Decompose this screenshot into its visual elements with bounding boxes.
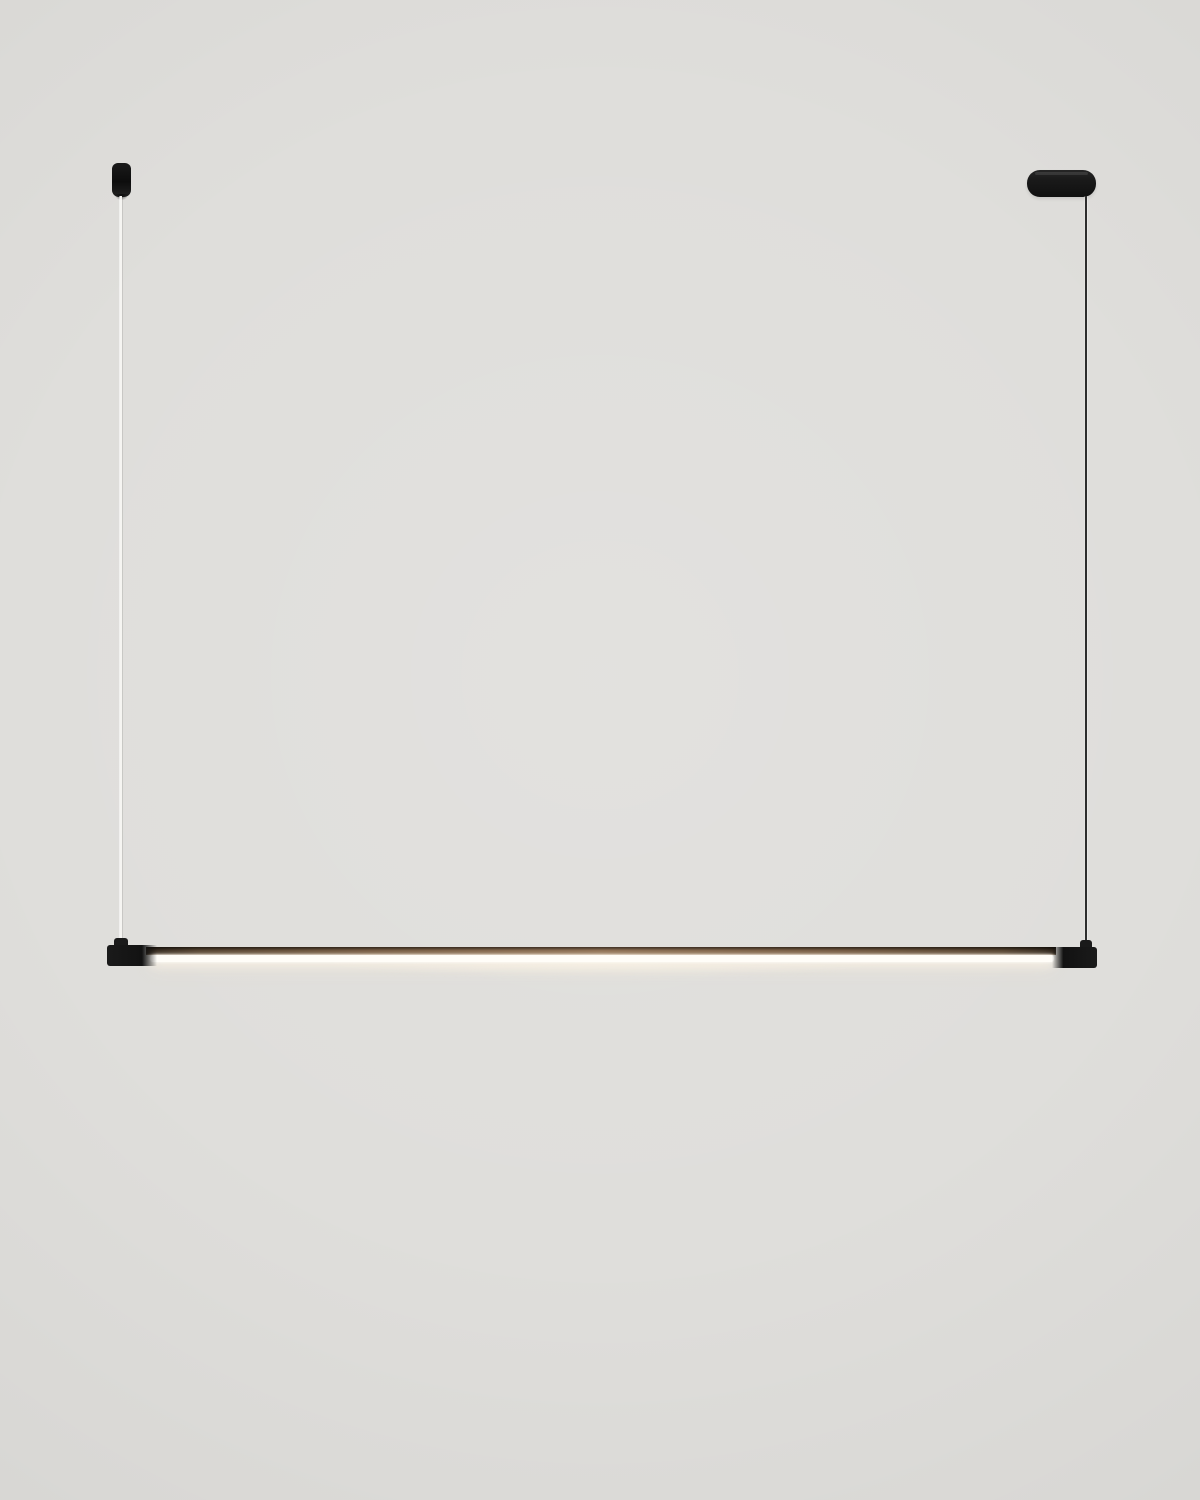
background-vignette [0,0,1200,1500]
suspension-cable-left [120,196,122,944]
led-strip [150,955,1054,962]
suspension-cable-right [1085,196,1087,950]
bar-endcap-left [107,945,157,966]
product-photo [0,0,1200,1500]
bar-housing-bronze [146,947,1056,955]
ceiling-canopy-right [1027,170,1096,197]
ceiling-mount-left [112,163,131,197]
led-glow [180,960,1025,986]
bar-endcap-right [1052,947,1097,968]
